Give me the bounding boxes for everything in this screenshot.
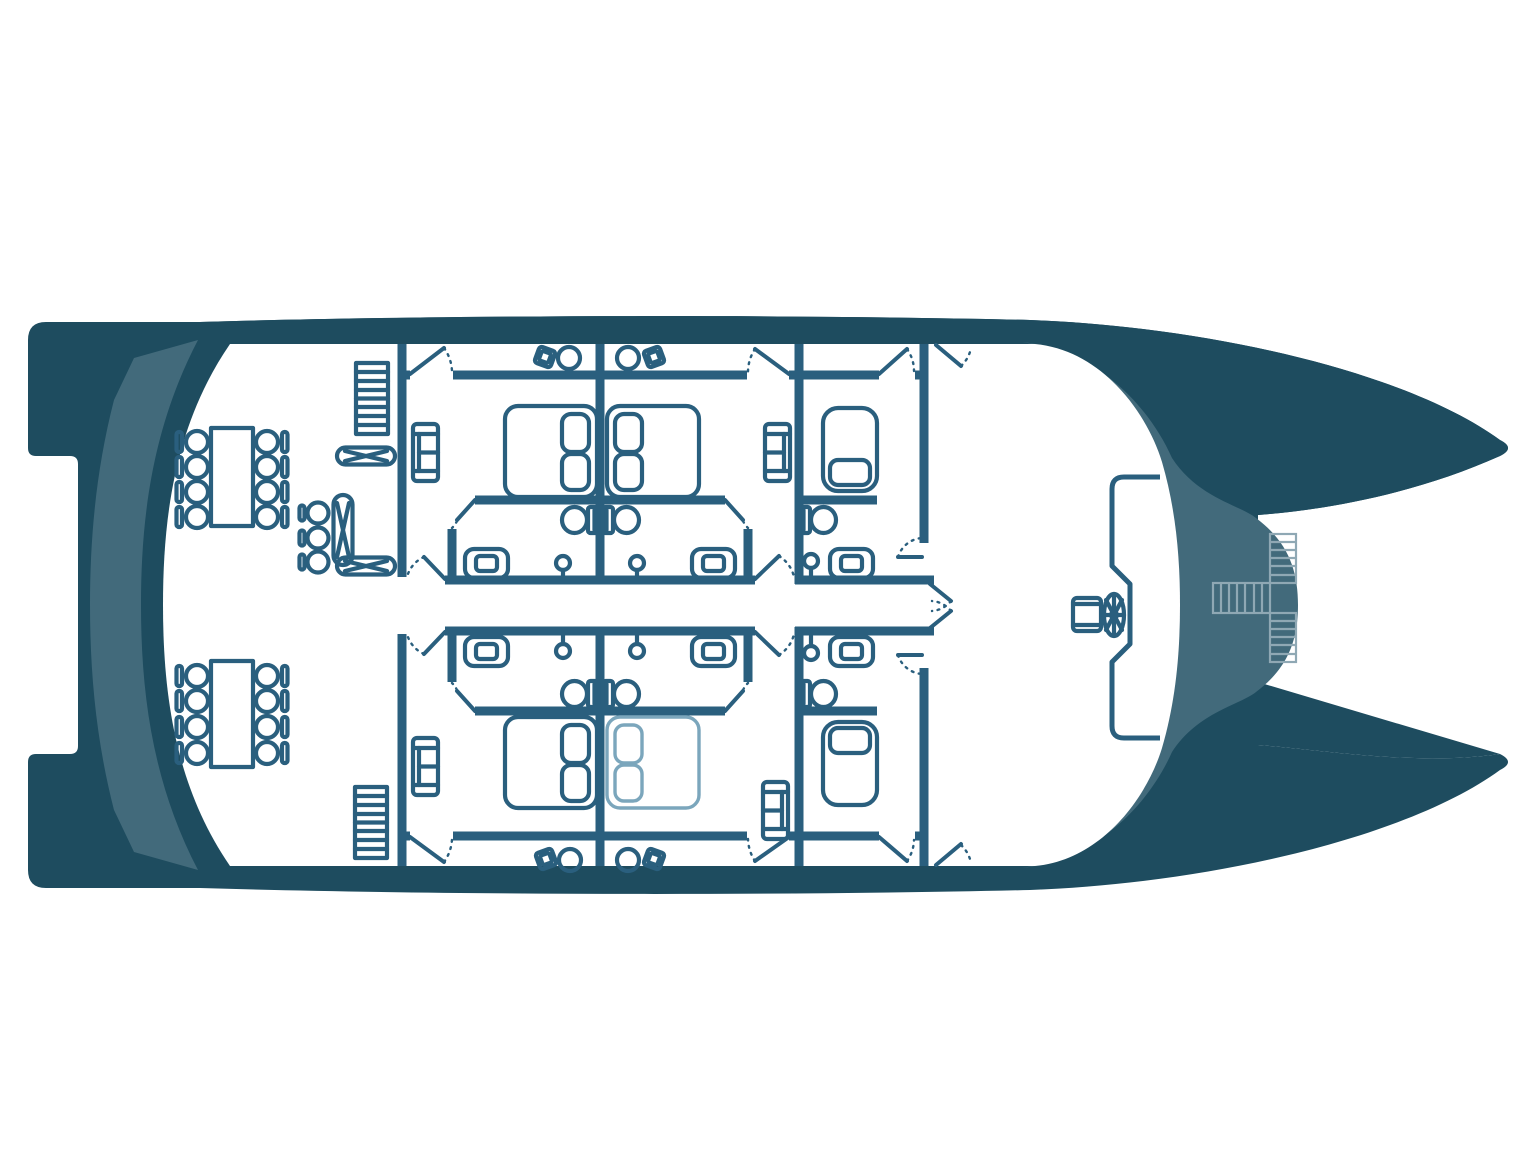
deck-plan-page: Catamaran cabin deck floor plan [0,0,1537,1153]
staircase-port [356,363,388,434]
staircase-starboard [355,787,387,858]
deck-plan-svg [0,0,1537,1153]
steering-wheel [1104,594,1124,636]
interior-deck [163,344,1180,866]
